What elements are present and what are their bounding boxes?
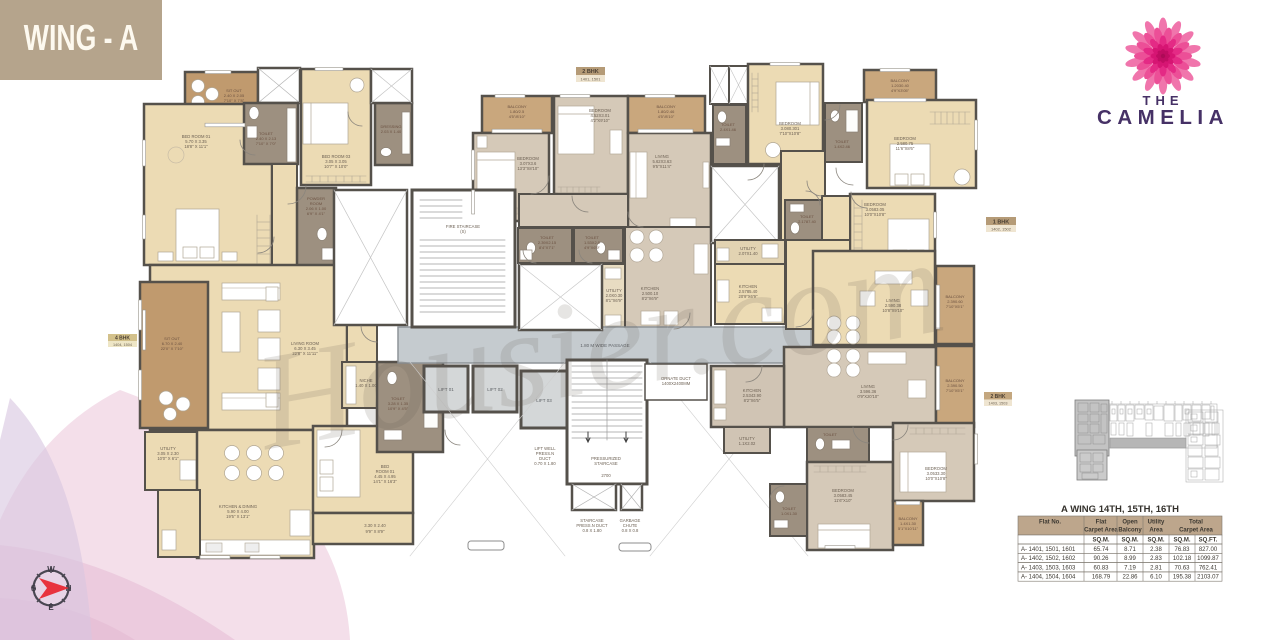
svg-text:7'10"X5'1": 7'10"X5'1": [946, 388, 965, 393]
svg-text:2 BHK: 2 BHK: [582, 69, 599, 75]
svg-text:7'10"X5'1": 7'10"X5'1": [946, 304, 965, 309]
svg-text:22.86: 22.86: [1122, 575, 1138, 581]
svg-text:2.1787.40: 2.1787.40: [798, 219, 817, 224]
svg-text:4'5"/8'10": 4'5"/8'10": [658, 114, 675, 119]
svg-text:8'2"X6'5": 8'2"X6'5": [744, 398, 761, 403]
svg-text:168.79: 168.79: [1092, 575, 1111, 581]
svg-text:TOILET: TOILET: [823, 432, 837, 437]
svg-text:0.8 X 1.80: 0.8 X 1.80: [582, 528, 602, 533]
svg-text:4'5"/8'10": 4'5"/8'10": [509, 114, 526, 119]
svg-text:0.8 X 0.8: 0.8 X 0.8: [622, 528, 639, 533]
svg-text:(S): (S): [460, 229, 466, 234]
svg-text:SQ.FT.: SQ.FT.: [1199, 538, 1218, 544]
svg-text:60.83: 60.83: [1093, 565, 1109, 571]
svg-text:Open: Open: [1122, 520, 1138, 526]
svg-text:9'5"X11'4": 9'5"X11'4": [653, 164, 672, 169]
svg-text:S: S: [31, 584, 37, 593]
svg-text:1404, 1504: 1404, 1504: [113, 343, 132, 347]
svg-text:CAMELIA: CAMELIA: [1097, 106, 1229, 129]
svg-text:7'10"X10'8": 7'10"X10'8": [779, 131, 801, 136]
svg-text:Total: Total: [1189, 520, 1203, 526]
svg-text:4'9"X6'9": 4'9"X6'9": [584, 245, 601, 250]
svg-text:9'9" X 8'9": 9'9" X 8'9": [365, 529, 385, 534]
svg-text:7.19: 7.19: [1124, 565, 1136, 571]
svg-text:Flat: Flat: [1096, 520, 1107, 526]
svg-text:SQ.M.: SQ.M.: [1092, 538, 1109, 544]
svg-text:2.03 X 1.40: 2.03 X 1.40: [381, 129, 402, 134]
svg-text:76.83: 76.83: [1174, 547, 1190, 553]
svg-text:Utility: Utility: [1148, 520, 1165, 526]
svg-text:4'2"X9'10": 4'2"X9'10": [590, 118, 610, 123]
svg-text:0'9"X20'10": 0'9"X20'10": [857, 394, 879, 399]
svg-text:1401, 1501: 1401, 1501: [580, 77, 601, 82]
svg-text:18'8" X 11'1": 18'8" X 11'1": [184, 144, 208, 149]
svg-text:8.99: 8.99: [1124, 556, 1136, 562]
svg-text:70.63: 70.63: [1174, 565, 1190, 571]
svg-text:Flat No.: Flat No.: [1039, 520, 1061, 526]
svg-text:4 BHK: 4 BHK: [115, 336, 130, 342]
svg-text:1403, 1503: 1403, 1503: [988, 402, 1007, 406]
svg-text:A- 1401, 1501, 1601: A- 1401, 1501, 1601: [1021, 547, 1076, 553]
svg-text:Area: Area: [1149, 528, 1163, 534]
svg-text:13'3"X8'10": 13'3"X8'10": [517, 166, 539, 171]
svg-text:1099.87: 1099.87: [1197, 556, 1219, 562]
svg-text:Balcony: Balcony: [1118, 528, 1142, 534]
svg-text:WING - A: WING - A: [24, 17, 139, 58]
svg-text:4'9"X3'05": 4'9"X3'05": [891, 88, 910, 93]
svg-text:1 BHK: 1 BHK: [993, 220, 1010, 226]
svg-text:14'1" X 16'3": 14'1" X 16'3": [373, 479, 397, 484]
svg-text:22'0" X 7'10": 22'0" X 7'10": [161, 346, 184, 351]
svg-text:W: W: [47, 565, 55, 574]
svg-text:1.4X2.46: 1.4X2.46: [834, 144, 851, 149]
svg-text:10'0"X10'8": 10'0"X10'8": [925, 476, 947, 481]
svg-text:6.10: 6.10: [1150, 575, 1162, 581]
svg-text:A- 1402, 1502, 1602: A- 1402, 1502, 1602: [1021, 556, 1076, 562]
svg-text:6'9" X 4'1": 6'9" X 4'1": [307, 211, 326, 216]
svg-text:SQ.M.: SQ.M.: [1121, 538, 1138, 544]
svg-text:0.70 X 1.80: 0.70 X 1.80: [534, 461, 556, 466]
svg-text:8.71: 8.71: [1124, 547, 1136, 553]
svg-text:195.38: 195.38: [1173, 575, 1192, 581]
svg-text:10'0" X 6'1": 10'0" X 6'1": [157, 456, 179, 461]
svg-text:SQ.M.: SQ.M.: [1173, 538, 1190, 544]
svg-text:2.81: 2.81: [1150, 565, 1162, 571]
svg-text:A WING 14TH, 15TH, 16TH: A WING 14TH, 15TH, 16TH: [1061, 504, 1179, 515]
svg-text:7'10" X 7'0": 7'10" X 7'0": [256, 141, 277, 146]
svg-text:A- 1404, 1504, 1604: A- 1404, 1504, 1604: [1021, 575, 1076, 581]
svg-text:2.4X1.46: 2.4X1.46: [720, 127, 737, 132]
svg-text:10'7" X 10'0": 10'7" X 10'0": [324, 164, 348, 169]
svg-text:Carpet Area: Carpet Area: [1084, 528, 1118, 534]
svg-text:11'6"X8'6": 11'6"X8'6": [896, 146, 915, 151]
svg-text:A- 1403, 1503, 1603: A- 1403, 1503, 1603: [1021, 565, 1076, 571]
svg-text:65.74: 65.74: [1093, 547, 1109, 553]
svg-text:762.41: 762.41: [1199, 565, 1218, 571]
svg-text:8'4"X7'1": 8'4"X7'1": [539, 245, 556, 250]
svg-text:102.18: 102.18: [1173, 556, 1192, 562]
svg-text:827.00: 827.00: [1199, 547, 1218, 553]
svg-text:5'1"X10'11": 5'1"X10'11": [898, 526, 919, 531]
svg-text:2 BHK: 2 BHK: [990, 394, 1005, 400]
svg-text:SQ.M.: SQ.M.: [1147, 538, 1164, 544]
svg-text:1402, 1502: 1402, 1502: [991, 227, 1012, 232]
svg-text:7'10" X 7'8": 7'10" X 7'8": [224, 98, 245, 103]
svg-text:2103.07: 2103.07: [1197, 575, 1219, 581]
svg-text:2.83: 2.83: [1150, 556, 1162, 562]
svg-text:1.1X2.02: 1.1X2.02: [739, 441, 756, 446]
svg-text:11'6"X10": 11'6"X10": [834, 498, 852, 503]
svg-text:3.30 X 2.40: 3.30 X 2.40: [364, 523, 386, 528]
svg-text:STAIRCASE: STAIRCASE: [594, 461, 618, 466]
svg-text:19'5" X 13'1": 19'5" X 13'1": [226, 514, 250, 519]
svg-text:1.0X1.30: 1.0X1.30: [781, 511, 798, 516]
svg-text:90.26: 90.26: [1093, 556, 1109, 562]
svg-text:2700: 2700: [601, 473, 611, 478]
svg-text:2.38: 2.38: [1150, 547, 1162, 553]
svg-text:Carpet Area: Carpet Area: [1179, 528, 1213, 534]
svg-text:E: E: [48, 603, 54, 612]
